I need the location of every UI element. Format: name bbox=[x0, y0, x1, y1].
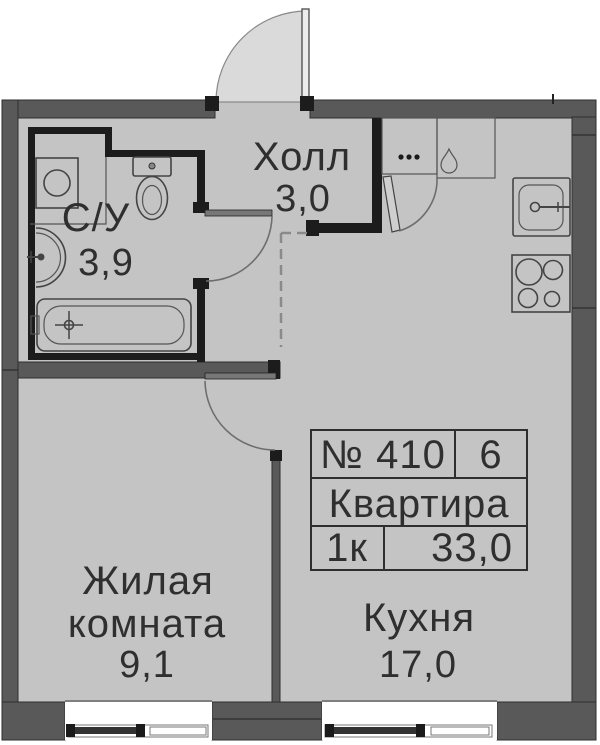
entrance-door-leaf bbox=[302, 9, 309, 103]
living-room-door-leaf bbox=[205, 373, 276, 379]
entrance-jamb-right bbox=[300, 96, 314, 111]
unit-number: № 410 bbox=[320, 433, 446, 477]
entrance-jamb-left bbox=[205, 96, 219, 111]
living-room-label-1: Жилая bbox=[82, 559, 214, 603]
entrance-number: 6 bbox=[479, 433, 502, 477]
kitchen-area: 17,0 bbox=[379, 644, 457, 686]
living-room-label-2: комната bbox=[68, 602, 226, 646]
outer-wall-right bbox=[572, 117, 596, 740]
bathroom-door-leaf bbox=[205, 210, 272, 216]
outer-wall-bottom-left-pier bbox=[2, 702, 65, 740]
hall-area: 3,0 bbox=[275, 178, 331, 220]
kitchen-window bbox=[322, 700, 497, 740]
floor-plan-canvas: № 410 6 Квартира 1к 33,0 Холл 3,0 С/У 3,… bbox=[0, 0, 600, 745]
rooms-count: 1к bbox=[326, 526, 368, 570]
living-room-area: 9,1 bbox=[119, 644, 175, 686]
vent-dots-icon bbox=[398, 154, 419, 159]
partition-end-cap bbox=[270, 450, 282, 461]
outer-wall-left bbox=[2, 100, 18, 740]
window-hinge bbox=[66, 724, 75, 737]
total-area: 33,0 bbox=[431, 526, 513, 570]
window-hinge bbox=[136, 724, 145, 737]
hall-wall-vertical bbox=[372, 118, 382, 233]
window-hinge bbox=[416, 724, 425, 737]
bathroom-door-jamb-bottom bbox=[193, 278, 209, 289]
outer-wall-bottom-middle-pier bbox=[212, 702, 322, 740]
bathroom-wall-right-lower bbox=[197, 278, 205, 362]
window-hinge bbox=[325, 724, 334, 737]
hall-wall-horizontal bbox=[310, 223, 382, 233]
bathroom-wall-bottom bbox=[28, 353, 205, 360]
bathroom-wall-top-1 bbox=[28, 127, 112, 134]
window-sash bbox=[334, 727, 416, 734]
living-room-window bbox=[65, 700, 212, 740]
unit-type-label: Квартира bbox=[329, 482, 510, 526]
hall-label: Холл bbox=[253, 135, 351, 179]
outer-wall-top-left bbox=[6, 100, 215, 118]
window-sash bbox=[75, 727, 136, 734]
living-kitchen-partition bbox=[272, 452, 280, 702]
floor-plan: № 410 6 Квартира 1к 33,0 Холл 3,0 С/У 3,… bbox=[0, 0, 600, 745]
kitchen-label: Кухня bbox=[363, 596, 475, 640]
outer-wall-bottom-right-pier bbox=[497, 702, 596, 740]
bathroom-area: 3,9 bbox=[78, 242, 134, 284]
entrance-door-swing bbox=[216, 11, 307, 102]
bathroom-label: С/У bbox=[62, 196, 130, 240]
bathroom-wall-top-2 bbox=[105, 150, 205, 157]
hall-wall-end-cap bbox=[306, 220, 319, 236]
